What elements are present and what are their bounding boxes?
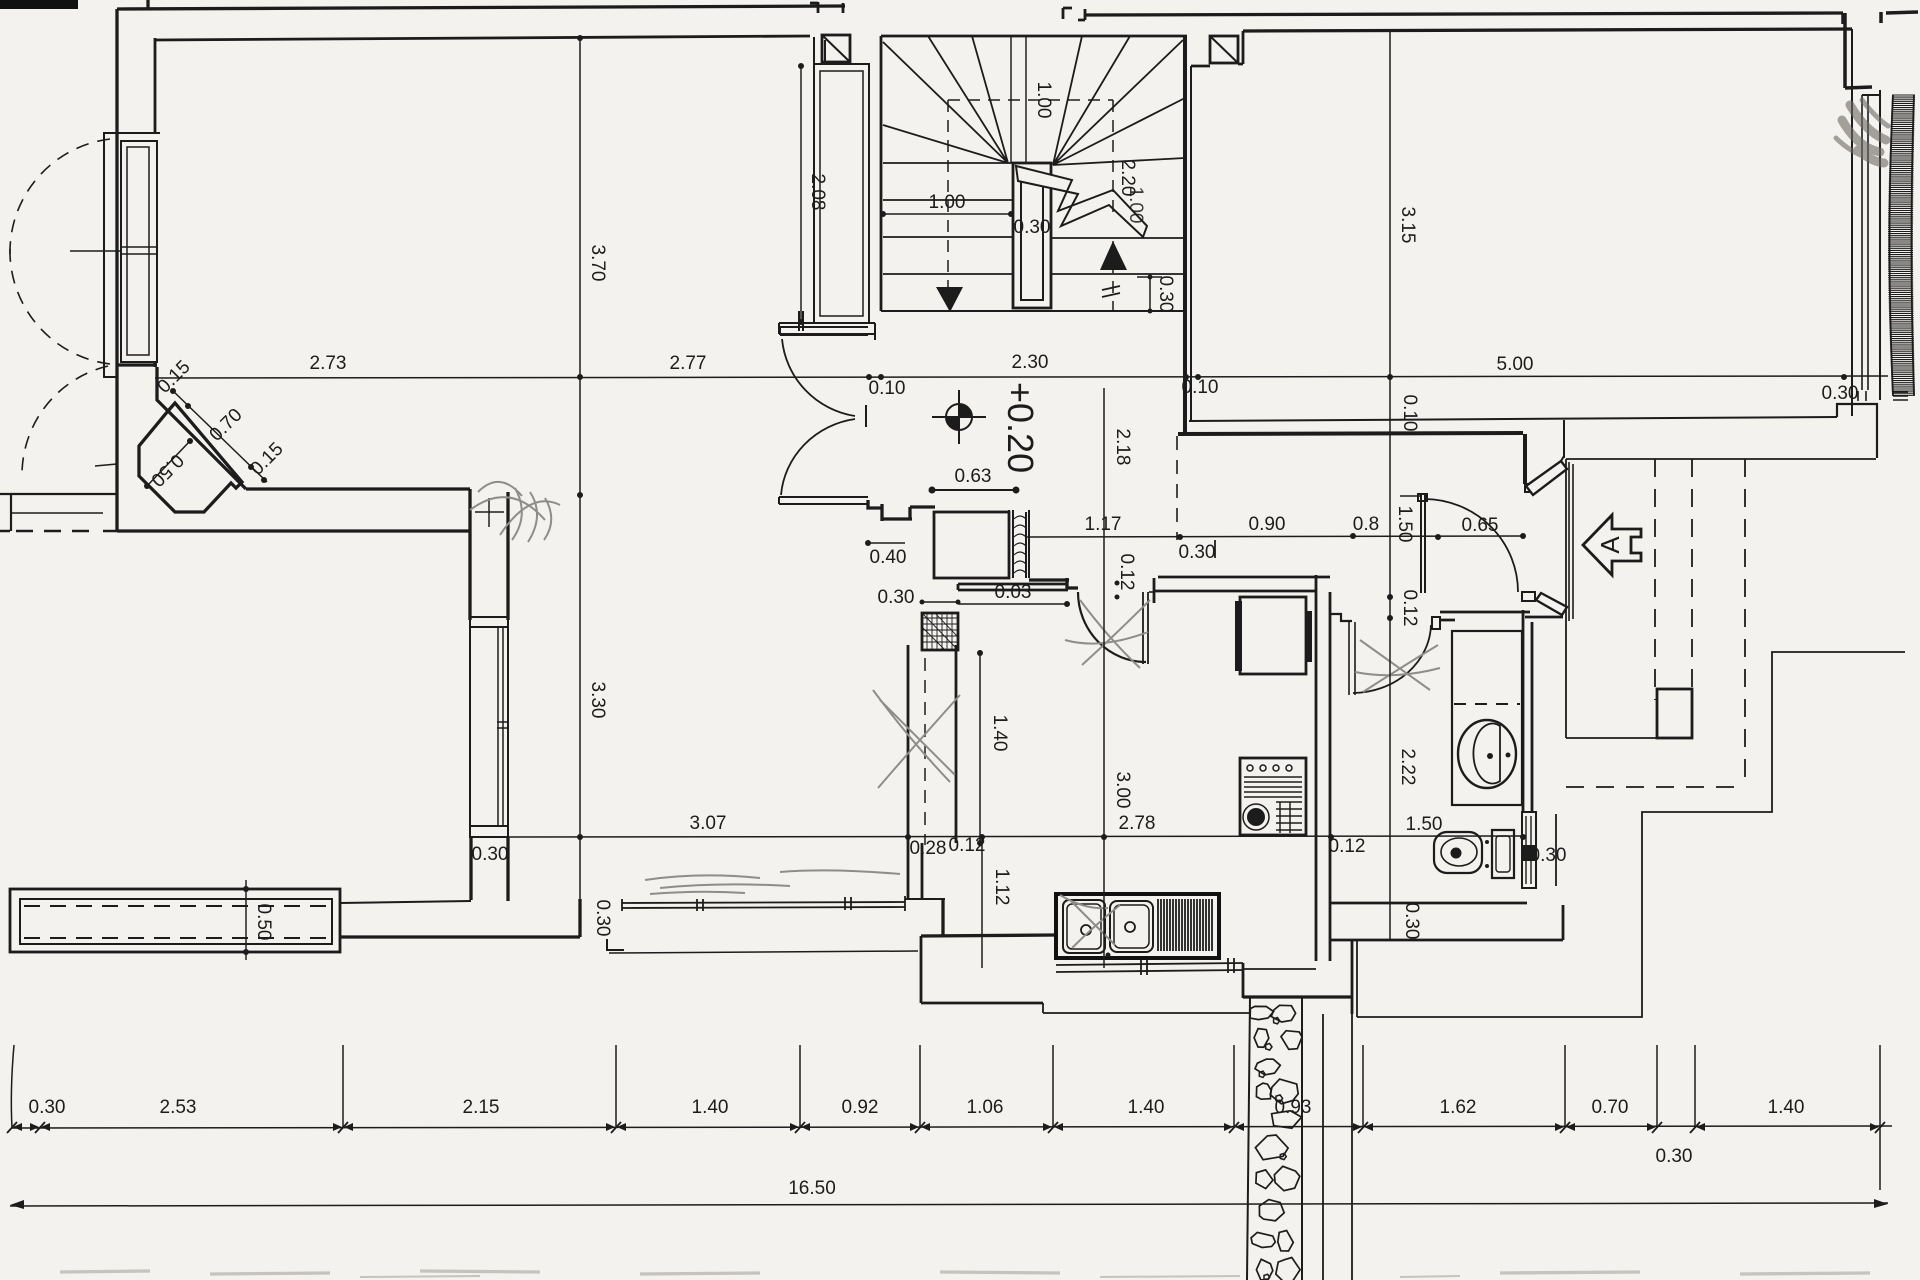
svg-text:2.08: 2.08	[807, 174, 828, 211]
svg-text:2.30: 2.30	[1012, 352, 1049, 373]
svg-text:0.30: 0.30	[1179, 542, 1216, 563]
svg-text:0.12: 0.12	[1399, 590, 1420, 627]
svg-text:1.62: 1.62	[1440, 1097, 1477, 1118]
svg-text:0.30: 0.30	[592, 900, 613, 937]
svg-text:0.30: 0.30	[1656, 1146, 1693, 1167]
svg-text:0.10: 0.10	[1399, 395, 1420, 432]
svg-text:1.50: 1.50	[1406, 814, 1443, 835]
svg-text:0.12: 0.12	[1116, 554, 1137, 591]
svg-text:0.30: 0.30	[1530, 845, 1567, 866]
svg-text:0.92: 0.92	[842, 1097, 879, 1118]
svg-text:0.70: 0.70	[1592, 1097, 1629, 1118]
svg-text:0.03: 0.03	[995, 582, 1032, 603]
svg-text:1.00: 1.00	[1125, 187, 1146, 224]
svg-text:0.30: 0.30	[878, 587, 915, 608]
svg-text:0.30: 0.30	[1014, 217, 1051, 238]
svg-text:0.10: 0.10	[869, 378, 906, 399]
svg-text:2.22: 2.22	[1397, 749, 1418, 786]
svg-text:0.12: 0.12	[949, 835, 986, 856]
svg-text:1.12: 1.12	[991, 869, 1012, 906]
svg-text:2.77: 2.77	[670, 353, 707, 374]
svg-text:5.00: 5.00	[1497, 354, 1534, 375]
svg-text:0.65: 0.65	[1462, 515, 1499, 536]
svg-text:1.40: 1.40	[989, 715, 1010, 752]
svg-text:3.30: 3.30	[587, 682, 608, 719]
svg-text:0.90: 0.90	[1249, 514, 1286, 535]
svg-text:1.06: 1.06	[967, 1097, 1004, 1118]
svg-text:1.40: 1.40	[1768, 1097, 1805, 1118]
svg-text:1.00: 1.00	[929, 192, 966, 213]
svg-text:2.18: 2.18	[1112, 429, 1133, 466]
svg-text:0.30: 0.30	[1401, 903, 1422, 940]
svg-text:3.00: 3.00	[1112, 772, 1133, 809]
svg-text:0.93: 0.93	[1275, 1097, 1312, 1118]
svg-text:A: A	[1595, 536, 1625, 554]
svg-text:0.28: 0.28	[910, 838, 947, 859]
svg-text:16.50: 16.50	[788, 1178, 836, 1199]
svg-text:3.07: 3.07	[690, 813, 727, 834]
svg-text:3.15: 3.15	[1397, 207, 1418, 244]
svg-text:1.40: 1.40	[692, 1097, 729, 1118]
svg-text:0.30: 0.30	[29, 1097, 66, 1118]
svg-text:0.12: 0.12	[1329, 836, 1366, 857]
svg-text:0.8: 0.8	[1353, 514, 1379, 535]
svg-text:2.15: 2.15	[463, 1097, 500, 1118]
svg-text:+0.20: +0.20	[1000, 382, 1041, 473]
svg-text:2.78: 2.78	[1119, 813, 1156, 834]
svg-text:1.50: 1.50	[1394, 506, 1415, 543]
svg-text:0.63: 0.63	[955, 466, 992, 487]
svg-text:0.40: 0.40	[870, 547, 907, 568]
svg-text:1.40: 1.40	[1128, 1097, 1165, 1118]
svg-text:3.70: 3.70	[587, 245, 608, 282]
svg-text:2.73: 2.73	[310, 353, 347, 374]
svg-text:0.30: 0.30	[1822, 383, 1859, 404]
svg-text:2.53: 2.53	[160, 1097, 197, 1118]
svg-text:0.10: 0.10	[1182, 377, 1219, 398]
svg-text:0.50: 0.50	[253, 904, 274, 941]
svg-text:0.30: 0.30	[1155, 276, 1176, 313]
svg-text:1.17: 1.17	[1085, 514, 1122, 535]
